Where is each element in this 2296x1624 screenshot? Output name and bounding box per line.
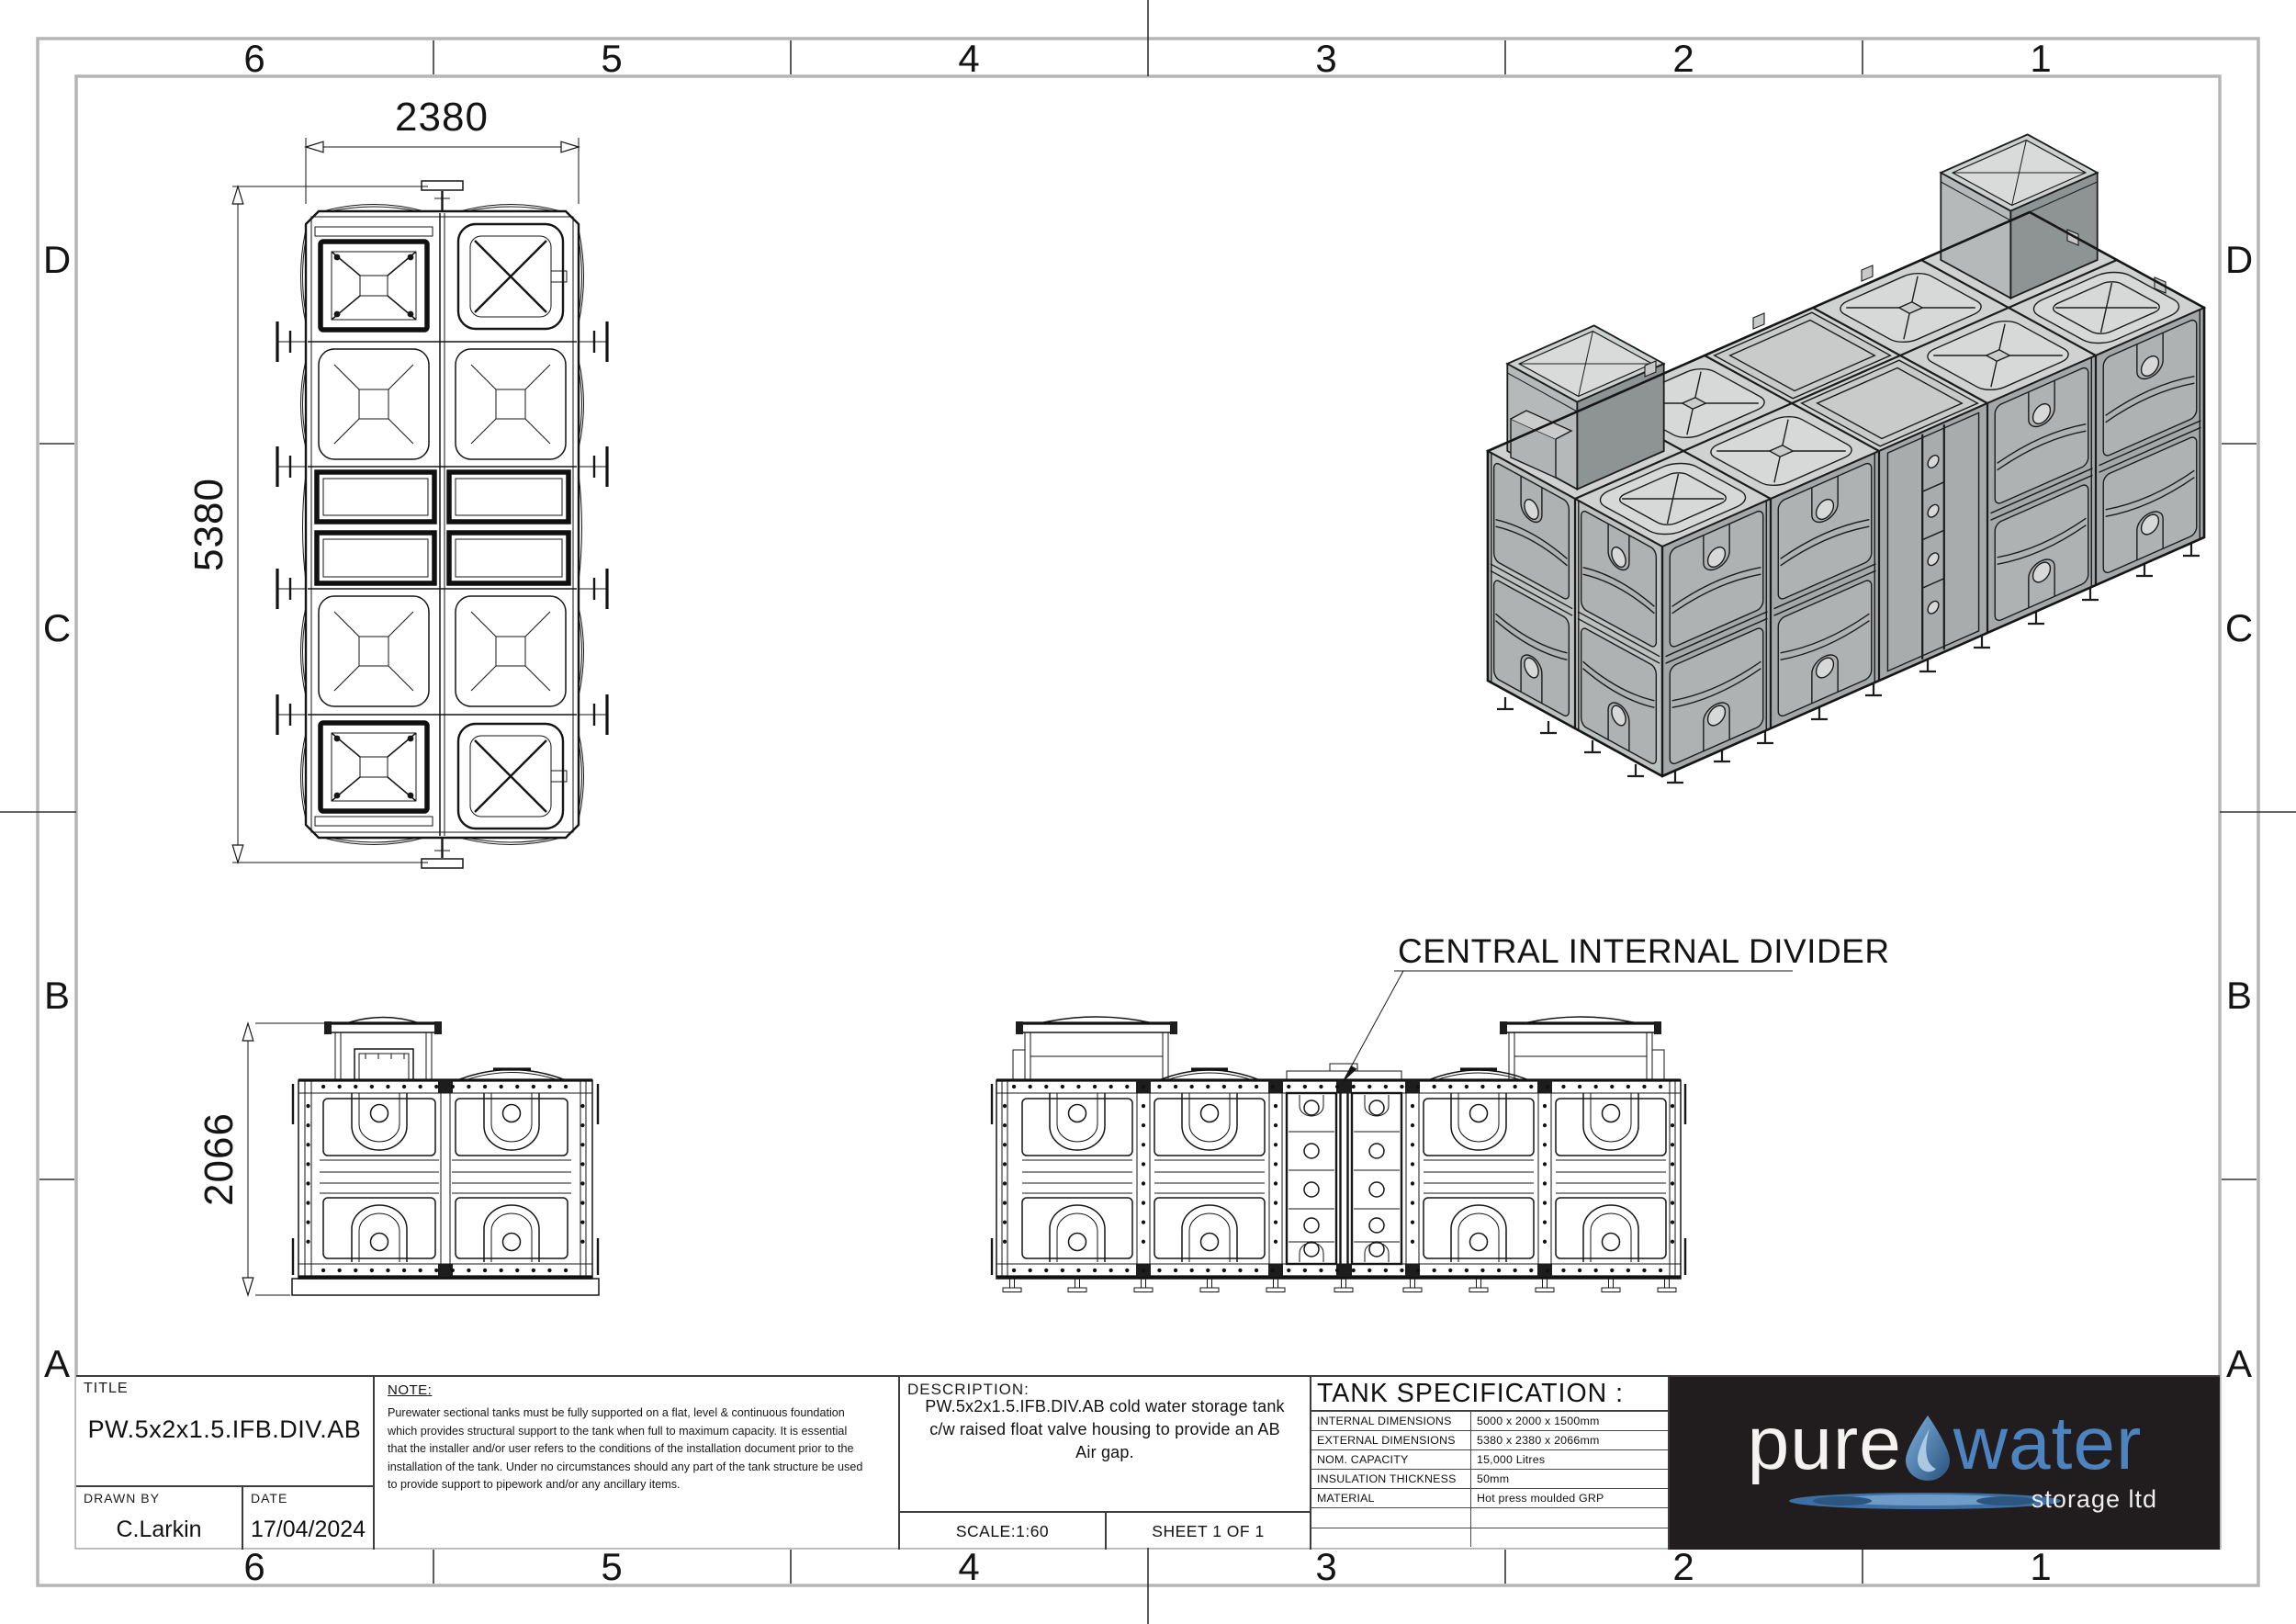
table-row: INSULATION THICKNESS 50mm (1311, 1470, 1668, 1489)
title-box: TITLE PW.5x2x1.5.IFB.DIV.AB (76, 1377, 375, 1485)
spec-value: 15,000 Litres (1471, 1450, 1669, 1470)
sheet-value: SHEET 1 OF 1 (1152, 1522, 1264, 1541)
title-label: TITLE (84, 1381, 129, 1397)
drawn-by-box: DRAWN BY C.Larkin (76, 1485, 243, 1550)
water-drop-icon (1905, 1415, 1951, 1482)
drawing-sheet: 6 5 4 3 2 1 6 5 4 3 2 1 D C B A D C B A (0, 0, 2296, 1624)
plan-pipe-stub-top (422, 181, 463, 211)
plan-pipe-stub-bottom (422, 838, 463, 868)
table-row: INTERNAL DIMENSIONS 5000 x 2000 x 1500mm (1311, 1412, 1668, 1431)
date-label: DATE (251, 1491, 287, 1506)
spec-value: Hot press moulded GRP (1471, 1489, 1669, 1508)
grid-col-label: 4 (958, 1545, 979, 1588)
spec-value: 5380 x 2380 x 2066mm (1471, 1431, 1669, 1450)
table-row: EXTERNAL DIMENSIONS 5380 x 2380 x 2066mm (1311, 1431, 1668, 1450)
grid-col-label: 1 (2030, 37, 2051, 80)
water-splash-icon (1787, 1487, 2063, 1515)
spec-label: INTERNAL DIMENSIONS (1311, 1412, 1471, 1431)
table-row: MATERIAL Hot press moulded GRP (1311, 1489, 1668, 1508)
note-line: Purewater sectional tanks must be fully … (388, 1404, 887, 1423)
grid-col-label: 5 (601, 37, 622, 80)
tank-specification: TANK SPECIFICATION : INTERNAL DIMENSIONS… (1311, 1377, 1670, 1550)
grid-col-label: 3 (1315, 37, 1336, 80)
front-float-valve-housing-right (1500, 1017, 1664, 1080)
description-line: c/w raised float valve housing to provid… (900, 1418, 1310, 1441)
grid-row-label: C (43, 606, 71, 649)
front-view: CENTRAL INTERNAL DIVIDER (992, 932, 1890, 1292)
plan-roof-hatch (315, 227, 433, 330)
company-logo: pure water storage ltd (1670, 1377, 2220, 1550)
spec-label: NOM. CAPACITY (1311, 1450, 1471, 1470)
grid-row-label: A (2226, 1342, 2252, 1385)
note-line: that the installer and/or user refers to… (388, 1440, 887, 1459)
divider-annotation: CENTRAL INTERNAL DIVIDER (1343, 932, 1890, 1082)
note-line: installation of the tank. Under no circu… (388, 1459, 887, 1477)
spec-label: MATERIAL (1311, 1489, 1471, 1508)
grid-row-label: D (43, 238, 71, 281)
side-float-valve-housing (324, 1018, 442, 1081)
grid-row-label: B (44, 974, 70, 1017)
divider-annotation-text: CENTRAL INTERNAL DIVIDER (1398, 932, 1890, 970)
spec-value (1471, 1508, 1669, 1528)
spec-heading: TANK SPECIFICATION : (1311, 1377, 1668, 1411)
front-central-divider (1287, 1064, 1401, 1277)
note-label: NOTE: (388, 1382, 887, 1398)
logo-text-pure: pure (1748, 1401, 1902, 1487)
note-line: to provide support to pipework and/or an… (388, 1476, 887, 1494)
plan-roof-hatch (315, 723, 433, 826)
description-line: Air gap. (900, 1441, 1310, 1464)
isometric-view (1488, 134, 2204, 783)
grid-row-label: C (2225, 606, 2253, 649)
plan-access-hatch (458, 724, 567, 829)
table-row: NOM. CAPACITY 15,000 Litres (1311, 1450, 1668, 1470)
spec-value: 5000 x 2000 x 1500mm (1471, 1412, 1669, 1431)
drawn-by-label: DRAWN BY (84, 1491, 160, 1506)
grid-col-label: 6 (243, 1545, 264, 1588)
plan-view: 2380 5380 (186, 95, 607, 868)
description-box: DESCRIPTION: PW.5x2x1.5.IFB.DIV.AB cold … (900, 1377, 1311, 1511)
spec-value (1471, 1528, 1669, 1547)
spec-label: EXTERNAL DIMENSIONS (1311, 1431, 1471, 1450)
grid-col-label: 4 (958, 37, 979, 80)
logo-wordmark: pure water (1670, 1401, 2220, 1487)
grid-col-label: 3 (1315, 1545, 1336, 1588)
plan-divider-band (317, 472, 568, 583)
plan-width-dimension: 2380 (306, 95, 579, 204)
logo-text-storage: storage ltd (2032, 1485, 2157, 1514)
note-box: NOTE: Purewater sectional tanks must be … (375, 1377, 900, 1550)
side-height-dimension: 2066 (197, 1023, 327, 1295)
sheet-box: SHEET 1 OF 1 (1107, 1511, 1311, 1550)
table-row (1311, 1528, 1668, 1547)
plan-length-dim-text: 5380 (186, 478, 231, 571)
grid-row-label: D (2225, 238, 2253, 281)
grid-col-label: 1 (2030, 1545, 2051, 1588)
plan-width-dim-text: 2380 (395, 95, 489, 140)
grid-col-label: 5 (601, 1545, 622, 1588)
grid-col-label: 2 (1672, 1545, 1694, 1588)
grid-row-label: B (2226, 974, 2252, 1017)
plan-access-hatch (458, 224, 567, 329)
description-label: DESCRIPTION: (907, 1381, 1030, 1399)
scale-value: SCALE:1:60 (956, 1522, 1049, 1541)
note-line: which provides structural support to the… (388, 1423, 887, 1441)
grid-col-label: 2 (1672, 37, 1694, 80)
grid-row-label: A (44, 1342, 70, 1385)
grid-col-label: 6 (243, 37, 264, 80)
spec-label: INSULATION THICKNESS (1311, 1470, 1471, 1489)
title-block: TITLE PW.5x2x1.5.IFB.DIV.AB DRAWN BY C.L… (76, 1375, 2220, 1548)
spec-value: 50mm (1471, 1470, 1669, 1489)
side-view: 2066 (197, 1018, 599, 1296)
front-panels (1022, 1093, 1666, 1262)
spec-label (1311, 1508, 1471, 1528)
table-row (1311, 1508, 1668, 1528)
spec-table: INTERNAL DIMENSIONS 5000 x 2000 x 1500mm… (1311, 1411, 1668, 1547)
scale-box: SCALE:1:60 (900, 1511, 1107, 1550)
spec-label (1311, 1528, 1471, 1547)
front-float-valve-housing-left (1013, 1017, 1177, 1080)
description-text: PW.5x2x1.5.IFB.DIV.AB cold water storage… (900, 1395, 1310, 1464)
side-height-dim-text: 2066 (197, 1112, 242, 1206)
date-box: DATE 17/04/2024 (243, 1485, 375, 1550)
logo-text-water: water (1953, 1401, 2143, 1487)
